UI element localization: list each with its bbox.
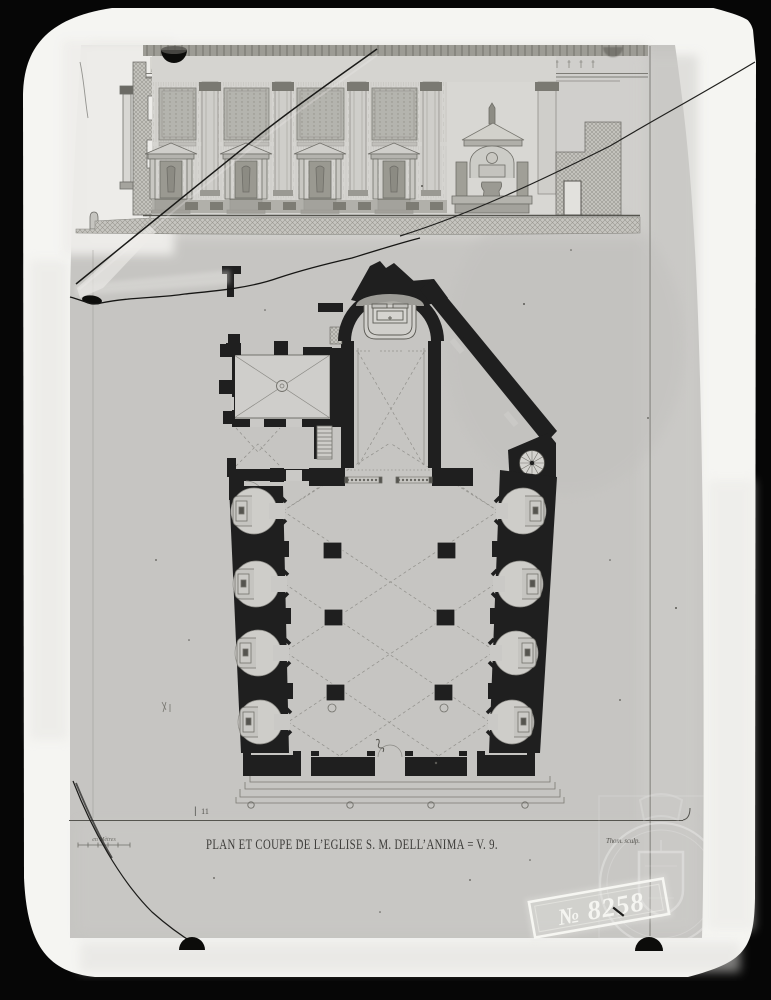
svg-text:▏11: ▏11 (194, 806, 209, 816)
svg-text:Thom. sculp.: Thom. sculp. (606, 837, 640, 845)
svg-text:en Mètres: en Mètres (92, 837, 116, 843)
svg-text:PLAN ET COUPE DE L’EGLISE S. M: PLAN ET COUPE DE L’EGLISE S. M. DELL’ANI… (206, 837, 498, 853)
